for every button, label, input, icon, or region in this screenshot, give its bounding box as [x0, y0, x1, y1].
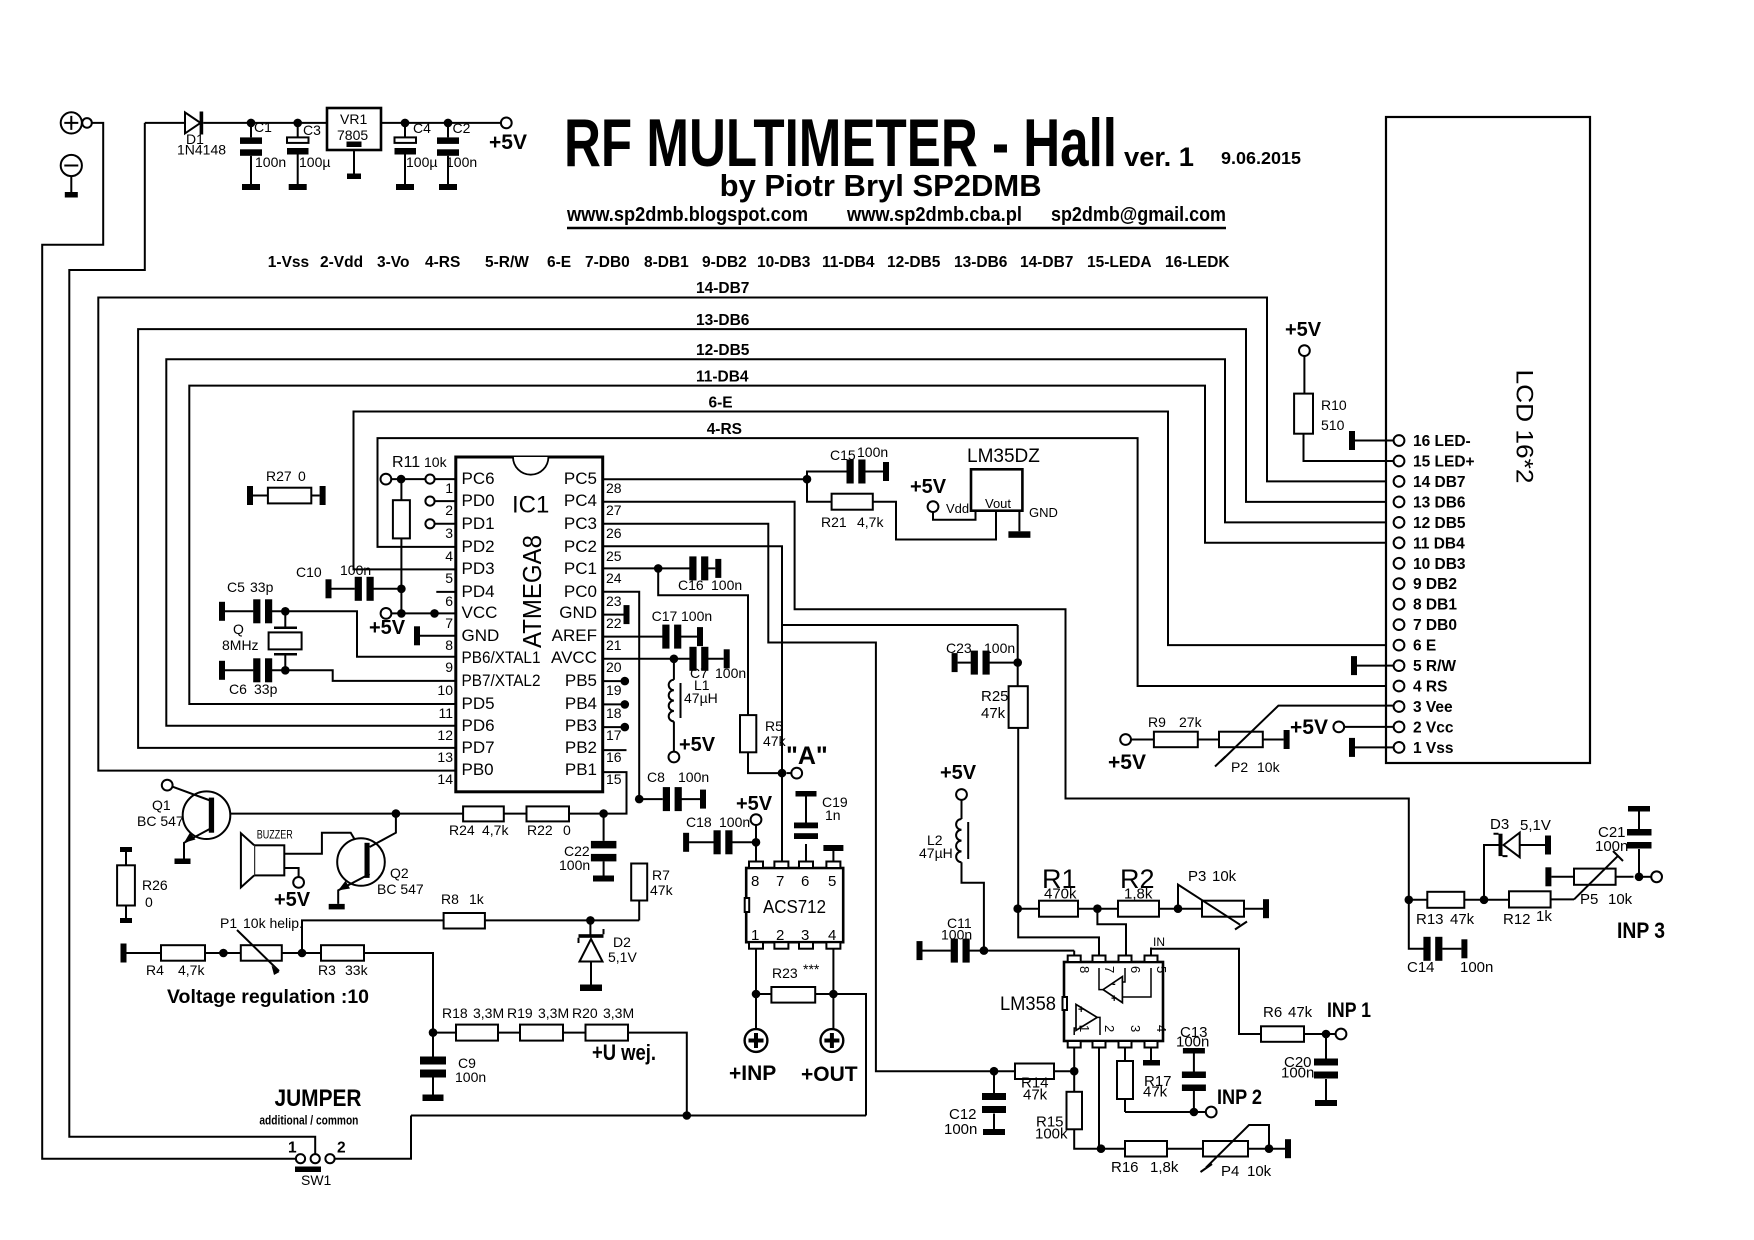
svg-text:10k: 10k [1212, 868, 1237, 885]
svg-text:100n: 100n [678, 769, 709, 785]
svg-text:C10: C10 [296, 564, 322, 580]
svg-text:PC4: PC4 [564, 491, 597, 510]
svg-text:10k: 10k [1247, 1163, 1272, 1180]
svg-text:4: 4 [828, 927, 836, 944]
svg-text:PB4: PB4 [565, 694, 597, 713]
svg-text:2: 2 [776, 927, 784, 944]
svg-text:100k: 100k [1035, 1126, 1068, 1143]
svg-text:P2: P2 [1231, 759, 1248, 775]
svg-text:PD1: PD1 [462, 514, 495, 533]
svg-text:+5V: +5V [910, 476, 947, 498]
svg-text:BUZZER: BUZZER [257, 830, 293, 842]
svg-text:-: - [1112, 978, 1116, 990]
svg-text:additional / common: additional / common [259, 1114, 358, 1128]
svg-text:PB7/XTAL2: PB7/XTAL2 [462, 671, 541, 690]
svg-text:6: 6 [1128, 966, 1143, 973]
svg-text:1,8k: 1,8k [1150, 1159, 1179, 1176]
svg-text:R8: R8 [441, 891, 459, 907]
svg-text:P4: P4 [1221, 1163, 1239, 1180]
svg-text:100n: 100n [255, 154, 286, 170]
svg-text:100n: 100n [681, 608, 712, 624]
svg-text:PD2: PD2 [462, 537, 495, 556]
svg-text:PD5: PD5 [462, 694, 495, 713]
svg-text:47k: 47k [763, 733, 787, 749]
svg-text:BC 547: BC 547 [137, 813, 184, 829]
svg-text:27: 27 [606, 502, 622, 518]
svg-text:IC1: IC1 [512, 492, 549, 519]
svg-text:1: 1 [288, 1140, 297, 1157]
svg-text:+5V: +5V [940, 762, 977, 784]
svg-text:R20: R20 [572, 1005, 598, 1021]
svg-text:Voltage regulation :10: Voltage regulation :10 [167, 986, 369, 1008]
svg-text:1k: 1k [469, 891, 485, 907]
svg-text:GND: GND [1029, 505, 1058, 520]
svg-text:5: 5 [445, 570, 453, 586]
svg-text:100n: 100n [941, 927, 972, 943]
svg-text:PD7: PD7 [462, 738, 495, 757]
svg-text:13: 13 [437, 749, 453, 765]
svg-text:100n: 100n [455, 1069, 486, 1085]
svg-text:2-Vdd: 2-Vdd [320, 254, 363, 271]
svg-text:8: 8 [1077, 966, 1092, 973]
svg-text:C4: C4 [413, 120, 431, 136]
svg-text:D3: D3 [1490, 816, 1509, 833]
svg-text:11-DB4: 11-DB4 [822, 254, 875, 271]
svg-text:7805: 7805 [337, 127, 368, 143]
svg-text:5,1V: 5,1V [608, 949, 637, 965]
svg-text:33p: 33p [250, 579, 274, 595]
svg-text:PC2: PC2 [564, 537, 597, 556]
svg-text:5 R/W: 5 R/W [1413, 658, 1456, 675]
svg-text:PB0: PB0 [462, 760, 494, 779]
svg-text:1n: 1n [825, 807, 841, 823]
svg-text:100n: 100n [1595, 838, 1628, 855]
svg-text:R21: R21 [821, 514, 847, 530]
svg-text:20: 20 [606, 659, 622, 675]
svg-text:100n: 100n [1176, 1034, 1209, 1051]
svg-text:ver. 1: ver. 1 [1124, 142, 1194, 172]
svg-text:R19: R19 [507, 1005, 533, 1021]
svg-text:13-DB6: 13-DB6 [954, 254, 1008, 271]
svg-text:5: 5 [828, 873, 836, 890]
svg-text:7: 7 [1102, 966, 1117, 973]
svg-text:0: 0 [298, 468, 306, 484]
svg-text:R24: R24 [449, 822, 475, 838]
svg-text:27k: 27k [1179, 714, 1203, 730]
svg-text:10k: 10k [424, 454, 448, 470]
svg-text:7 DB0: 7 DB0 [1413, 617, 1457, 634]
svg-text:Q: Q [233, 621, 244, 637]
svg-text:28: 28 [606, 480, 622, 496]
svg-text:INP 3: INP 3 [1617, 918, 1665, 943]
svg-text:***: *** [803, 961, 820, 977]
svg-text:R26: R26 [142, 877, 168, 893]
svg-text:12-DB5: 12-DB5 [887, 254, 941, 271]
svg-text:10k helip.: 10k helip. [243, 915, 303, 931]
svg-text:R22: R22 [527, 822, 553, 838]
svg-text:+5V: +5V [1108, 751, 1146, 774]
svg-text:12-DB5: 12-DB5 [696, 342, 750, 359]
svg-text:+OUT: +OUT [801, 1063, 858, 1086]
svg-text:P3: P3 [1188, 868, 1206, 885]
svg-text:+U wej.: +U wej. [592, 1040, 656, 1065]
svg-text:10k: 10k [1257, 759, 1281, 775]
svg-text:1: 1 [445, 480, 453, 496]
svg-text:INP 1: INP 1 [1327, 999, 1371, 1022]
svg-text:by Piotr Bryl SP2DMB: by Piotr Bryl SP2DMB [720, 168, 1042, 203]
svg-text:100µ: 100µ [406, 154, 437, 170]
svg-text:47k: 47k [1143, 1084, 1168, 1101]
svg-text:LM35DZ: LM35DZ [967, 446, 1040, 467]
svg-text:100n: 100n [719, 814, 750, 830]
svg-text:R25: R25 [981, 688, 1009, 705]
svg-text:R10: R10 [1321, 397, 1347, 413]
svg-text:"A": "A" [786, 742, 828, 770]
svg-text:PD0: PD0 [462, 491, 495, 510]
svg-text:6 E: 6 E [1413, 638, 1436, 655]
svg-text:PB1: PB1 [565, 760, 597, 779]
svg-text:C5: C5 [227, 579, 245, 595]
svg-text:6-E: 6-E [709, 395, 733, 412]
svg-text:14-DB7: 14-DB7 [1020, 254, 1073, 271]
svg-text:1k: 1k [1536, 908, 1552, 925]
svg-text:14: 14 [437, 771, 453, 787]
svg-text:33k: 33k [345, 962, 369, 978]
svg-text:C15: C15 [830, 447, 856, 463]
svg-text:+5V: +5V [1290, 716, 1328, 739]
svg-text:C17: C17 [652, 608, 678, 624]
svg-text:BC 547: BC 547 [377, 881, 424, 897]
svg-text:PB6/XTAL1: PB6/XTAL1 [462, 648, 541, 667]
svg-text:3: 3 [445, 525, 453, 541]
svg-text:8-DB1: 8-DB1 [644, 254, 689, 271]
svg-text:ACS712: ACS712 [763, 896, 826, 917]
svg-text:470k: 470k [1044, 886, 1077, 903]
svg-text:VCC: VCC [462, 603, 498, 622]
svg-text:47k: 47k [1288, 1004, 1313, 1021]
svg-text:1: 1 [751, 927, 759, 944]
svg-text:47k: 47k [650, 882, 674, 898]
svg-text:19: 19 [606, 682, 622, 698]
svg-text:sp2dmb@gmail.com: sp2dmb@gmail.com [1051, 204, 1226, 226]
svg-text:7: 7 [776, 873, 784, 890]
svg-text:15-LEDA: 15-LEDA [1087, 254, 1152, 271]
svg-text:C14: C14 [1407, 959, 1435, 976]
svg-text:R13: R13 [1416, 911, 1444, 928]
svg-text:8: 8 [751, 873, 759, 890]
svg-text:6-E: 6-E [547, 254, 571, 271]
svg-text:R5: R5 [765, 718, 783, 734]
svg-text:100n: 100n [446, 154, 477, 170]
svg-text:17: 17 [606, 727, 622, 743]
svg-text:16: 16 [606, 749, 622, 765]
svg-text:47µH: 47µH [919, 845, 953, 861]
svg-text:1,8k: 1,8k [1124, 886, 1153, 903]
svg-text:R6: R6 [1263, 1004, 1282, 1021]
svg-text:12: 12 [437, 727, 453, 743]
svg-text:+5V: +5V [736, 793, 773, 815]
svg-text:3,3M: 3,3M [538, 1005, 569, 1021]
svg-text:4-RS: 4-RS [425, 254, 460, 271]
svg-text:PD4: PD4 [462, 582, 495, 601]
svg-text:R23: R23 [772, 965, 798, 981]
svg-text:+: + [1111, 993, 1117, 1005]
svg-text:12 DB5: 12 DB5 [1413, 515, 1466, 532]
svg-text:GND: GND [462, 626, 500, 645]
svg-text:7-DB0: 7-DB0 [585, 254, 630, 271]
svg-text:18: 18 [606, 705, 622, 721]
svg-text:8MHz: 8MHz [222, 637, 259, 653]
svg-text:P1: P1 [220, 915, 237, 931]
svg-text:+5V: +5V [369, 617, 406, 639]
svg-text:8 DB1: 8 DB1 [1413, 597, 1457, 614]
svg-text:R27: R27 [266, 468, 292, 484]
svg-text:PC0: PC0 [564, 582, 597, 601]
svg-text:D2: D2 [613, 934, 631, 950]
svg-text:16 LED-: 16 LED- [1413, 433, 1471, 450]
svg-text:47µH: 47µH [684, 690, 718, 706]
svg-text:9 DB2: 9 DB2 [1413, 576, 1457, 593]
svg-text:13-DB6: 13-DB6 [696, 312, 750, 329]
svg-text:100n: 100n [711, 577, 742, 593]
svg-text:C6: C6 [229, 681, 247, 697]
svg-text:4,7k: 4,7k [178, 962, 205, 978]
svg-text:8: 8 [445, 637, 453, 653]
svg-text:PB3: PB3 [565, 716, 597, 735]
svg-text:47k: 47k [981, 705, 1006, 722]
svg-text:R16: R16 [1111, 1159, 1139, 1176]
svg-text:16-LEDK: 16-LEDK [1165, 254, 1230, 271]
svg-text:C23: C23 [946, 640, 972, 656]
svg-text:5,1V: 5,1V [1520, 817, 1551, 834]
svg-text:47k: 47k [1023, 1087, 1048, 1104]
svg-text:10k: 10k [1608, 891, 1633, 908]
svg-text:C8: C8 [647, 769, 665, 785]
svg-text:26: 26 [606, 525, 622, 541]
svg-text:R12: R12 [1503, 911, 1531, 928]
svg-text:6: 6 [445, 593, 453, 609]
svg-text:4,7k: 4,7k [482, 822, 509, 838]
svg-text:13 DB6: 13 DB6 [1413, 495, 1466, 512]
svg-text:Vdd: Vdd [946, 501, 969, 516]
svg-text:IN: IN [1153, 935, 1165, 949]
svg-text:33p: 33p [254, 681, 278, 697]
svg-text:510: 510 [1321, 417, 1345, 433]
svg-text:100n: 100n [944, 1121, 977, 1138]
svg-text:www.sp2dmb.blogspot.com: www.sp2dmb.blogspot.com [566, 204, 808, 226]
svg-text:3,3M: 3,3M [473, 1005, 504, 1021]
svg-text:100n: 100n [857, 444, 888, 460]
svg-text:C18: C18 [686, 814, 712, 830]
svg-text:15: 15 [606, 771, 622, 787]
svg-text:3: 3 [801, 927, 809, 944]
svg-text:-: - [1079, 1020, 1083, 1032]
svg-text:9.06.2015: 9.06.2015 [1221, 148, 1301, 168]
svg-text:25: 25 [606, 548, 622, 564]
svg-text:Vout: Vout [985, 496, 1011, 511]
svg-text:R3: R3 [318, 962, 336, 978]
svg-text:2: 2 [1102, 1025, 1117, 1032]
svg-text:100n: 100n [1460, 959, 1493, 976]
svg-text:C2: C2 [453, 120, 471, 136]
svg-text:PB2: PB2 [565, 738, 597, 757]
svg-text:Q2: Q2 [390, 865, 409, 881]
svg-text:14 DB7: 14 DB7 [1413, 474, 1466, 491]
svg-text:6: 6 [801, 873, 809, 890]
svg-text:9: 9 [445, 659, 453, 675]
svg-text:VR1: VR1 [340, 111, 367, 127]
svg-text:SW1: SW1 [301, 1172, 332, 1188]
svg-text:22: 22 [606, 615, 622, 631]
svg-text:24: 24 [606, 570, 622, 586]
svg-text:P5: P5 [1580, 891, 1598, 908]
svg-text:4: 4 [445, 548, 453, 564]
svg-text:5-R/W: 5-R/W [485, 254, 529, 271]
svg-text:0: 0 [145, 894, 153, 910]
svg-text:3,3M: 3,3M [603, 1005, 634, 1021]
svg-text:+5V: +5V [489, 131, 527, 154]
svg-text:9-DB2: 9-DB2 [702, 254, 747, 271]
svg-text:23: 23 [606, 593, 622, 609]
svg-text:3 Vee: 3 Vee [1413, 699, 1453, 716]
svg-text:R11: R11 [392, 454, 420, 471]
svg-text:AVCC: AVCC [551, 648, 597, 667]
svg-text:100n: 100n [559, 857, 590, 873]
svg-text:2: 2 [337, 1140, 346, 1157]
svg-text:LM358: LM358 [1000, 994, 1056, 1015]
svg-text:+: + [1078, 1004, 1084, 1016]
svg-text:PC5: PC5 [564, 469, 597, 488]
svg-text:Q1: Q1 [152, 797, 171, 813]
svg-text:3-Vo: 3-Vo [377, 254, 409, 271]
svg-text:1-Vss: 1-Vss [268, 254, 309, 271]
svg-text:100n: 100n [984, 640, 1015, 656]
svg-text:10 DB3: 10 DB3 [1413, 556, 1466, 573]
svg-text:11 DB4: 11 DB4 [1413, 535, 1465, 552]
svg-text:0: 0 [563, 822, 571, 838]
svg-text:4,7k: 4,7k [857, 514, 884, 530]
svg-text:INP 2: INP 2 [1217, 1086, 1262, 1109]
svg-text:GND: GND [559, 603, 597, 622]
svg-text:C3: C3 [303, 122, 321, 138]
svg-text:3: 3 [1128, 1025, 1143, 1032]
svg-text:+INP: +INP [729, 1062, 776, 1085]
svg-text:www.sp2dmb.cba.pl: www.sp2dmb.cba.pl [846, 204, 1022, 226]
svg-text:47k: 47k [1450, 911, 1475, 928]
svg-text:14-DB7: 14-DB7 [696, 280, 749, 297]
svg-text:PB5: PB5 [565, 671, 597, 690]
svg-text:R18: R18 [442, 1005, 468, 1021]
svg-text:4: 4 [1154, 1025, 1169, 1032]
svg-text:LCD 16*2: LCD 16*2 [1511, 370, 1538, 484]
svg-text:21: 21 [606, 637, 622, 653]
svg-text:2 Vcc: 2 Vcc [1413, 719, 1454, 736]
svg-text:2: 2 [445, 502, 453, 518]
svg-text:ATMEGA8: ATMEGA8 [517, 535, 547, 648]
svg-text:11-DB4: 11-DB4 [696, 369, 749, 386]
svg-text:5: 5 [1154, 966, 1169, 973]
svg-text:PC1: PC1 [564, 559, 597, 578]
svg-text:10-DB3: 10-DB3 [757, 254, 811, 271]
svg-text:AREF: AREF [552, 626, 597, 645]
svg-text:+5V: +5V [1285, 319, 1322, 341]
svg-text:PD3: PD3 [462, 559, 495, 578]
svg-text:100n: 100n [340, 562, 371, 578]
svg-text:4-RS: 4-RS [707, 421, 742, 438]
svg-text:PC6: PC6 [462, 469, 495, 488]
svg-text:R4: R4 [146, 962, 164, 978]
svg-text:100n: 100n [715, 665, 746, 681]
svg-text:R7: R7 [652, 867, 670, 883]
svg-text:C1: C1 [254, 119, 272, 135]
svg-text:100µ: 100µ [299, 154, 330, 170]
svg-text:R9: R9 [1148, 714, 1166, 730]
svg-text:C16: C16 [678, 577, 704, 593]
svg-text:100n: 100n [1281, 1065, 1314, 1082]
svg-text:4 RS: 4 RS [1413, 679, 1447, 696]
svg-text:1 Vss: 1 Vss [1413, 740, 1454, 757]
svg-text:11: 11 [438, 705, 453, 721]
svg-text:15 LED+: 15 LED+ [1413, 454, 1475, 471]
svg-text:1N4148: 1N4148 [177, 142, 226, 158]
svg-text:+5V: +5V [274, 889, 311, 911]
svg-text:7: 7 [445, 615, 453, 631]
svg-text:JUMPER: JUMPER [275, 1085, 362, 1112]
svg-text:PC3: PC3 [564, 514, 597, 533]
svg-text:PD6: PD6 [462, 716, 495, 735]
svg-text:10: 10 [437, 682, 453, 698]
svg-text:+5V: +5V [679, 734, 716, 756]
